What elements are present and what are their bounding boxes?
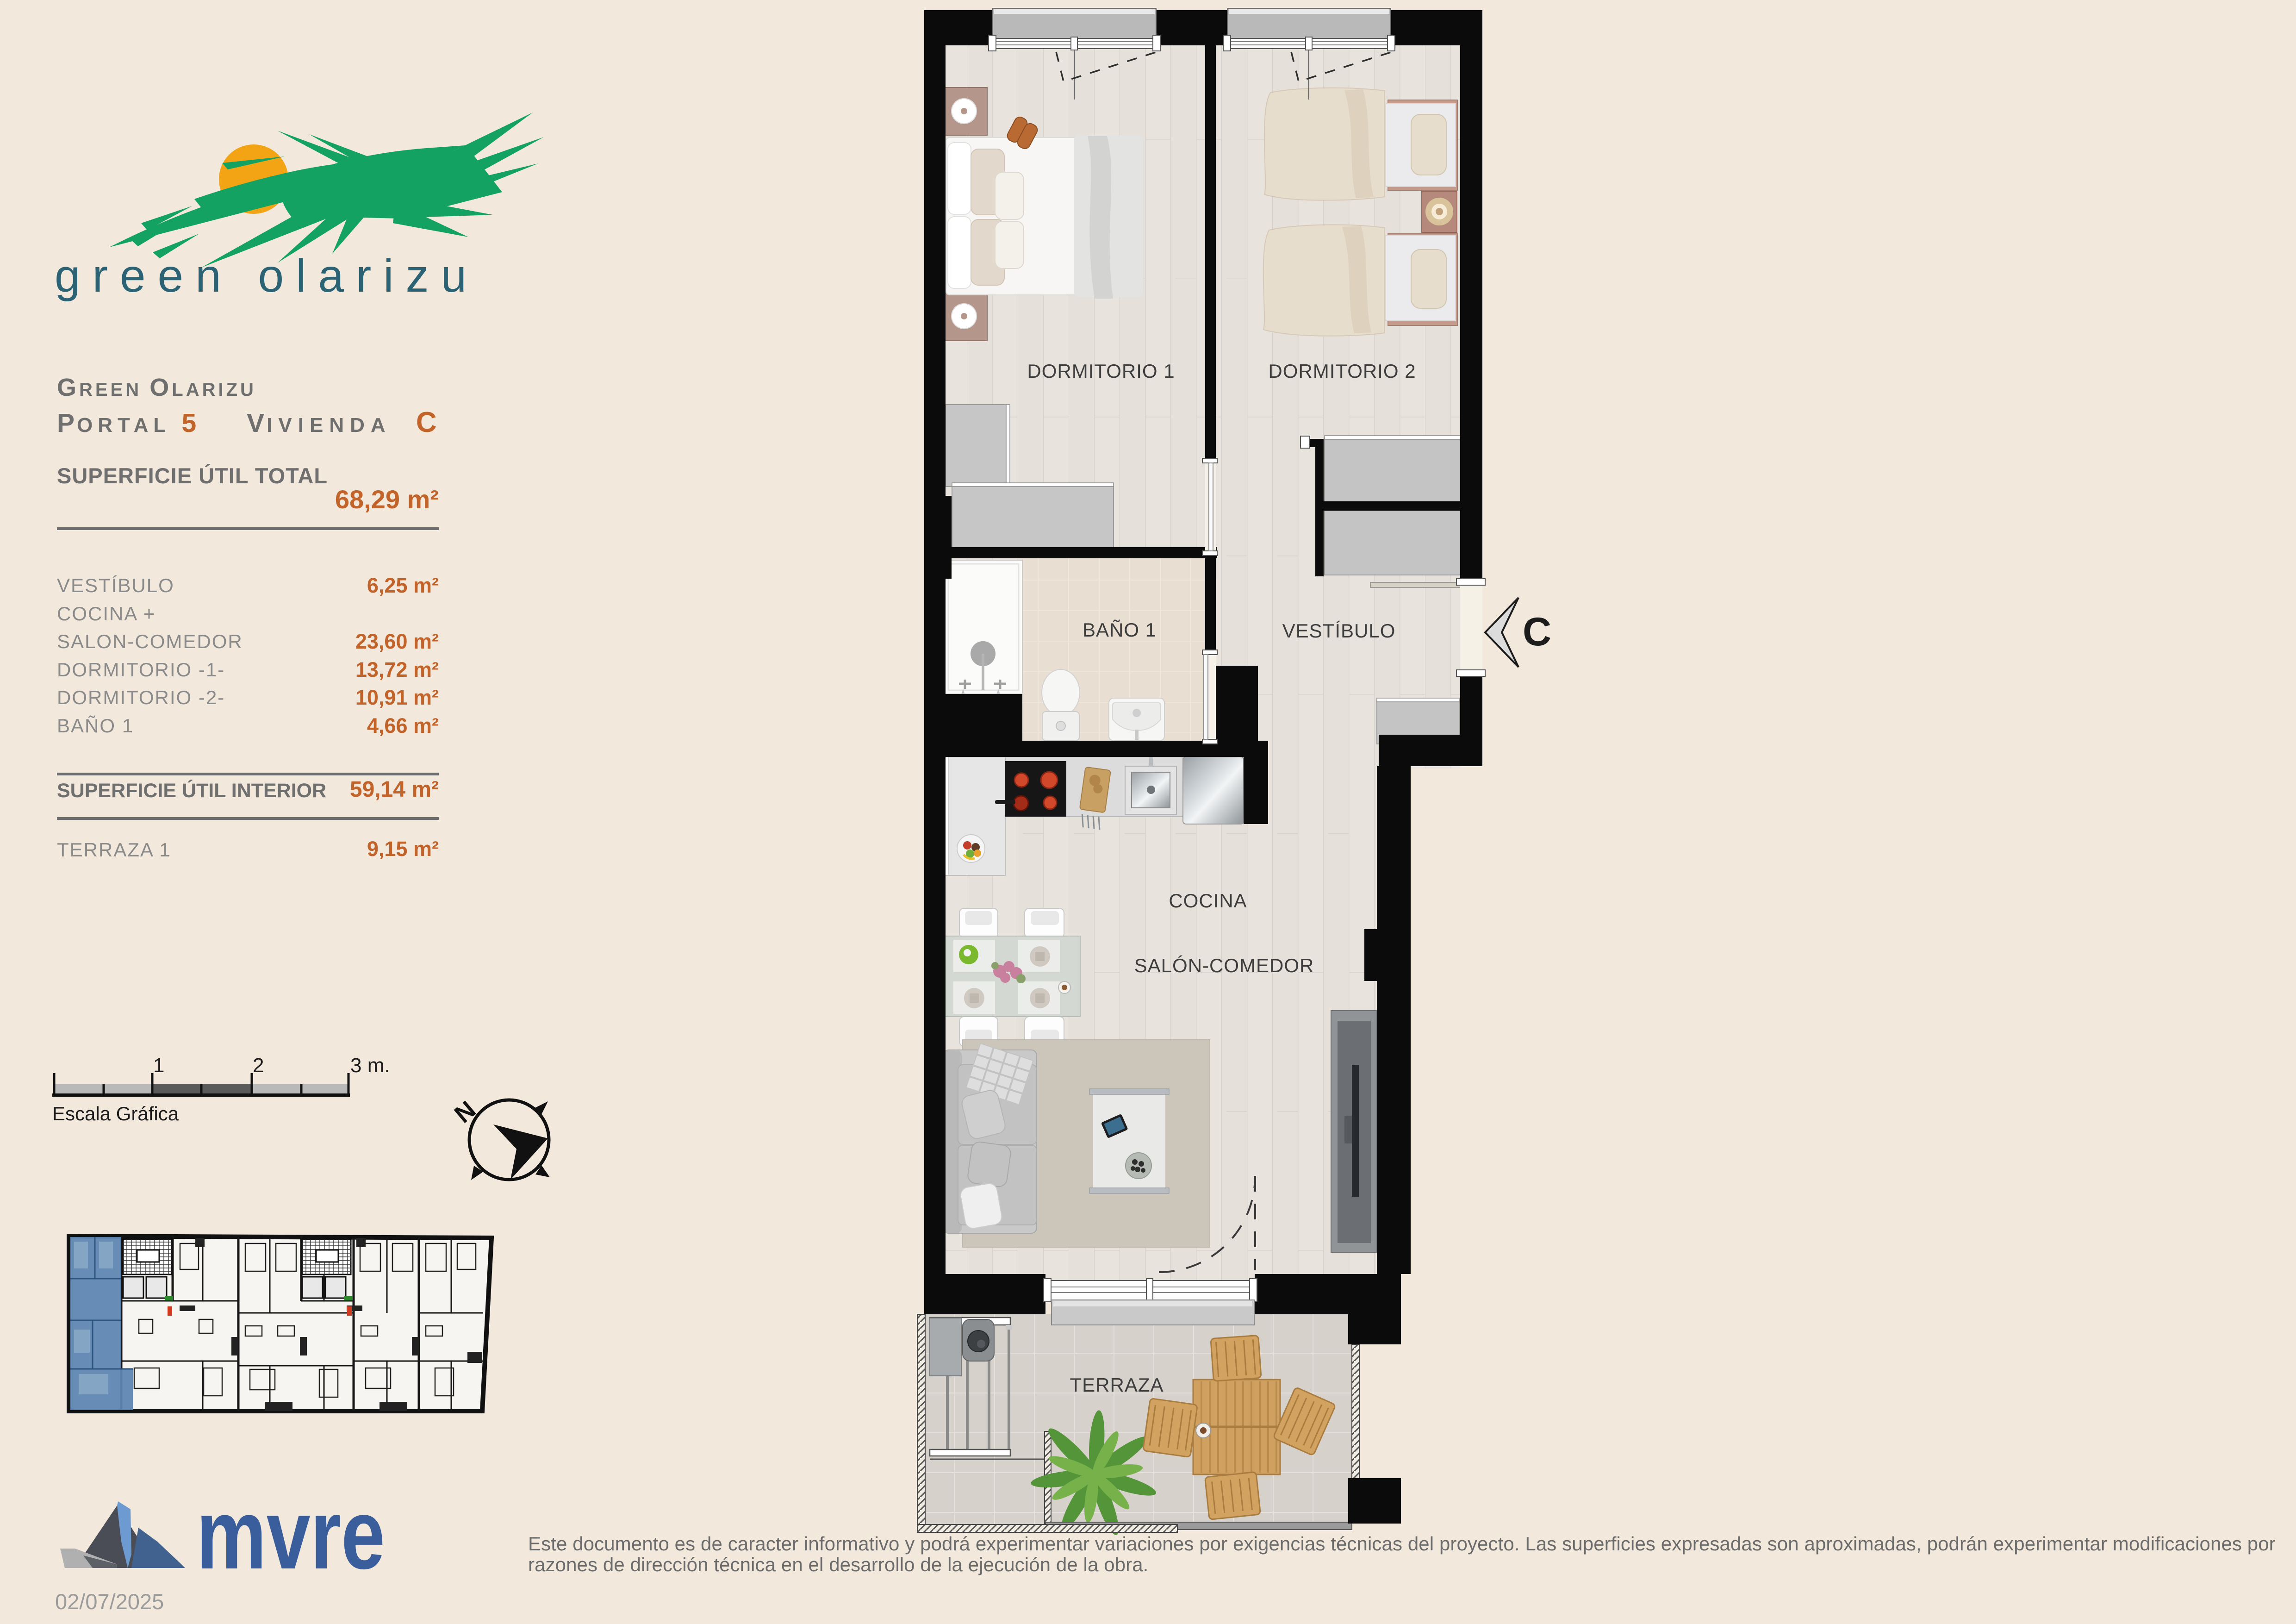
svg-text:SALÓN-COMEDOR: SALÓN-COMEDOR xyxy=(1134,955,1314,976)
svg-text:green olarizu: green olarizu xyxy=(55,250,479,302)
svg-text:BAÑO 1: BAÑO 1 xyxy=(1083,619,1157,641)
svg-text:DORMITORIO 1: DORMITORIO 1 xyxy=(1027,360,1175,382)
svg-text:N: N xyxy=(449,1095,481,1128)
svg-text:3 m.: 3 m. xyxy=(350,1054,390,1077)
svg-text:VESTÍBULO: VESTÍBULO xyxy=(1282,620,1396,642)
svg-text:2: 2 xyxy=(253,1054,264,1077)
svg-text:DORMITORIO 2: DORMITORIO 2 xyxy=(1268,360,1416,382)
svg-text:C: C xyxy=(1523,610,1551,654)
svg-text:mvre: mvre xyxy=(196,1478,385,1590)
svg-text:1: 1 xyxy=(153,1054,164,1077)
svg-text:COCINA: COCINA xyxy=(1169,890,1247,912)
svg-text:Escala Gráfica: Escala Gráfica xyxy=(52,1103,179,1124)
svg-text:TERRAZA: TERRAZA xyxy=(1070,1374,1164,1396)
